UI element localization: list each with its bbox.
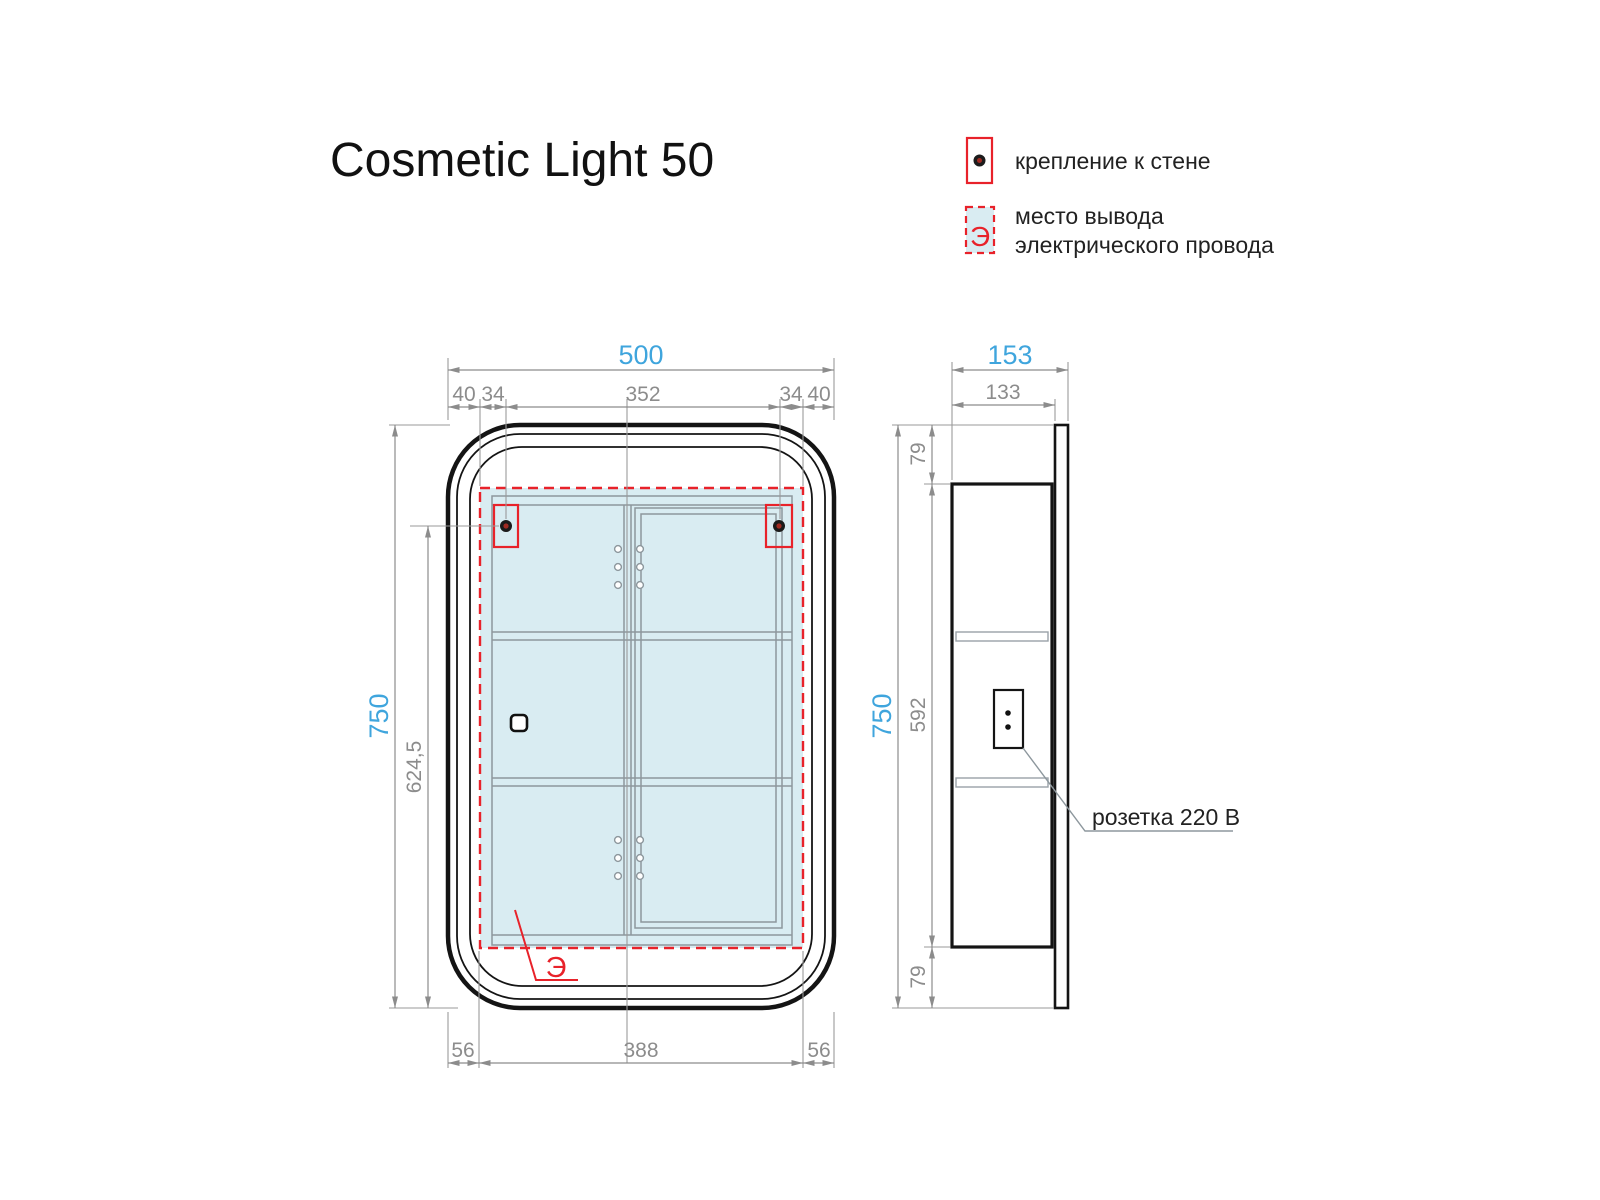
hinge-hole xyxy=(637,873,644,880)
socket-pin-bottom xyxy=(1005,724,1011,730)
hinge-hole xyxy=(637,855,644,862)
side-dim-height: 750 xyxy=(867,693,897,738)
side-dim-depth: 153 xyxy=(987,340,1032,370)
wire-callout-symbol: Э xyxy=(546,952,567,984)
mount-dot-center-icon xyxy=(977,158,982,163)
hinge-hole xyxy=(615,564,622,571)
front-dim-40-left: 40 xyxy=(452,383,475,406)
front-dim-388: 388 xyxy=(623,1039,658,1062)
front-dim-40-right: 40 xyxy=(807,383,830,406)
socket-label: розетка 220 В xyxy=(1092,804,1240,830)
side-shelf-1 xyxy=(956,632,1048,641)
legend-wire-symbol: Э xyxy=(970,221,990,252)
hinge-hole xyxy=(637,546,644,553)
legend-mount-label: крепление к стене xyxy=(1015,148,1211,174)
hinge-hole xyxy=(637,837,644,844)
hinge-hole xyxy=(615,582,622,589)
technical-drawing: Cosmetic Light 50 крепление к стене Э ме… xyxy=(0,0,1600,1200)
side-dim-592: 592 xyxy=(907,697,930,732)
side-dim-79-top: 79 xyxy=(907,442,930,465)
legend: крепление к стене Э место вывода электри… xyxy=(966,138,1274,258)
hinge-hole xyxy=(637,564,644,571)
legend-wire-label-line1: место вывода xyxy=(1015,203,1164,229)
mount-dot-right-center xyxy=(776,523,781,528)
side-mirror-panel xyxy=(1055,425,1068,1008)
legend-wire-label-line2: электрического провода xyxy=(1015,232,1274,258)
page-title: Cosmetic Light 50 xyxy=(330,134,714,187)
hinge-hole xyxy=(615,546,622,553)
front-dim-56-left: 56 xyxy=(451,1039,474,1062)
front-dim-mount-height: 624,5 xyxy=(403,741,426,794)
side-shelf-2 xyxy=(956,778,1048,787)
front-dim-352: 352 xyxy=(625,383,660,406)
socket-icon xyxy=(994,690,1023,748)
front-dim-height: 750 xyxy=(364,693,394,738)
hinge-hole xyxy=(615,873,622,880)
side-view: розетка 220 В 153 133 750 79 592 79 xyxy=(867,340,1240,1008)
front-dim-56-right: 56 xyxy=(807,1039,830,1062)
side-dim-79-bottom: 79 xyxy=(907,965,930,988)
hinge-hole xyxy=(637,582,644,589)
drawing-page: Cosmetic Light 50 крепление к стене Э ме… xyxy=(0,0,1600,1200)
hinge-hole xyxy=(615,837,622,844)
hinge-hole xyxy=(615,855,622,862)
touch-switch-icon xyxy=(511,715,527,731)
mount-dot-left-center xyxy=(503,523,508,528)
front-dim-width: 500 xyxy=(618,340,663,370)
front-view: Э xyxy=(364,340,834,1068)
front-dim-34-right: 34 xyxy=(779,383,803,406)
socket-pin-top xyxy=(1005,710,1011,716)
front-dim-34-left: 34 xyxy=(481,383,505,406)
side-dim-depth-inner: 133 xyxy=(985,381,1020,404)
